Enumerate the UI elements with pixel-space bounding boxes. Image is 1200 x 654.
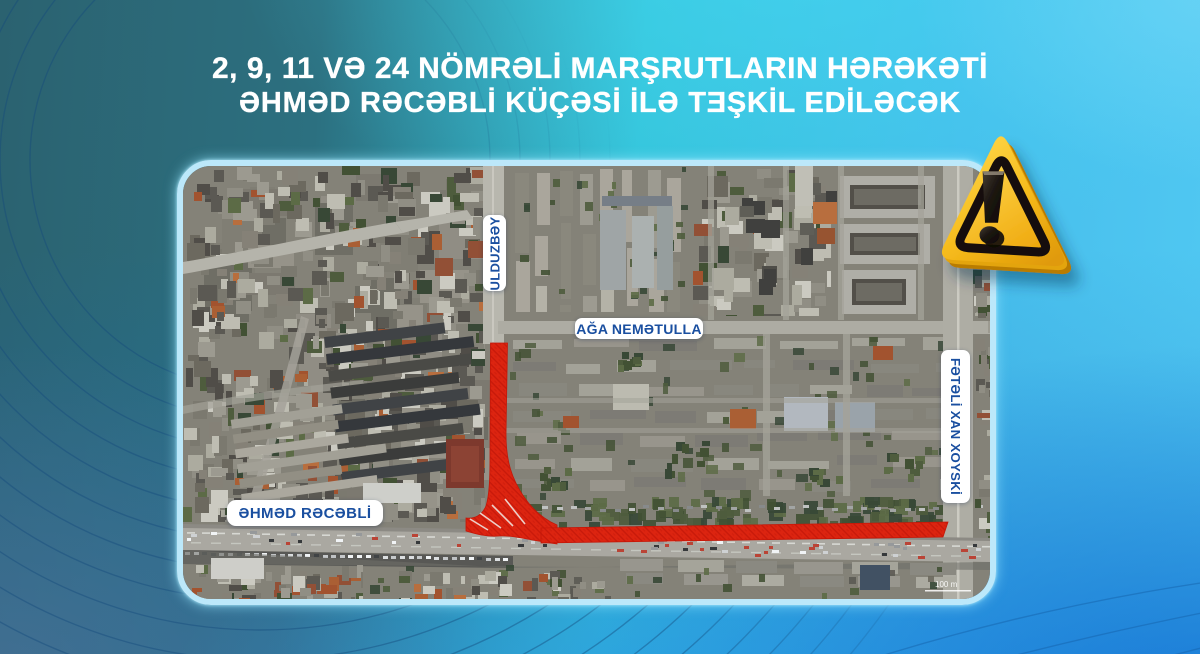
svg-text:100 m: 100 m	[935, 580, 958, 589]
